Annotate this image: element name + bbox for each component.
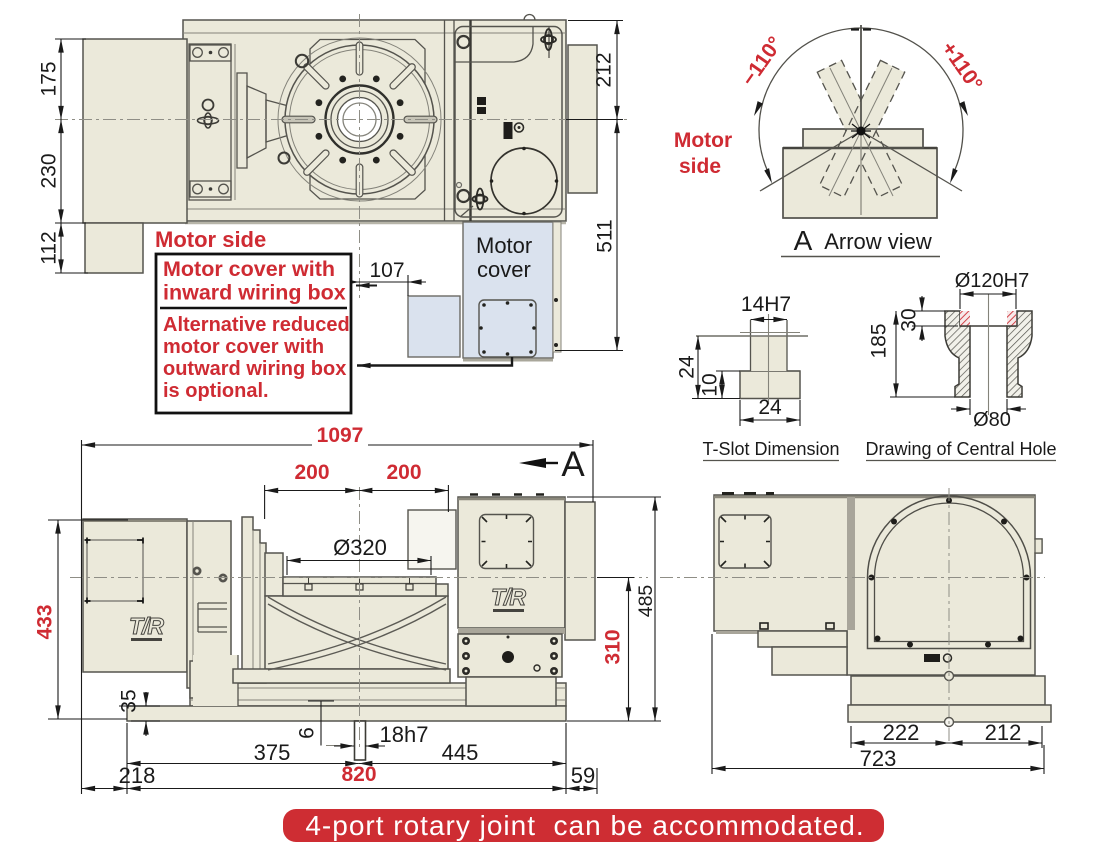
svg-text:inward wiring box: inward wiring box — [163, 281, 346, 305]
svg-text:723: 723 — [860, 746, 897, 771]
svg-text:310: 310 — [602, 629, 625, 664]
svg-text:motor cover with: motor cover with — [163, 336, 324, 358]
svg-text:10: 10 — [699, 373, 722, 396]
svg-text:433: 433 — [34, 604, 57, 639]
svg-text:112: 112 — [38, 231, 61, 264]
svg-text:Ø320: Ø320 — [333, 535, 387, 560]
svg-text:218: 218 — [119, 763, 156, 788]
svg-text:445: 445 — [442, 740, 479, 765]
svg-text:T/R: T/R — [129, 613, 164, 639]
svg-text:24: 24 — [758, 396, 782, 419]
svg-text:200: 200 — [294, 461, 329, 484]
svg-text:4-port rotary joint can be ac: 4-port rotary joint can be accommodated. — [305, 810, 864, 841]
svg-text:side: side — [679, 155, 721, 178]
svg-text:Motor side: Motor side — [155, 227, 266, 252]
svg-text:6: 6 — [296, 727, 319, 739]
svg-text:T-Slot Dimension: T-Slot Dimension — [702, 439, 839, 459]
svg-text:35: 35 — [118, 689, 141, 712]
svg-text:cover: cover — [477, 257, 531, 282]
svg-text:Motor: Motor — [674, 129, 732, 152]
svg-text:820: 820 — [341, 763, 376, 786]
svg-text:1097: 1097 — [317, 424, 364, 447]
svg-text:185: 185 — [868, 323, 891, 358]
svg-text:485: 485 — [635, 585, 657, 618]
svg-text:59: 59 — [571, 763, 595, 788]
svg-text:212: 212 — [593, 52, 616, 87]
svg-text:30: 30 — [898, 308, 921, 331]
svg-text:212: 212 — [985, 720, 1022, 745]
svg-text:107: 107 — [369, 259, 404, 282]
svg-text:A: A — [794, 225, 813, 256]
svg-text:24: 24 — [676, 355, 699, 379]
svg-text:Motor: Motor — [476, 233, 532, 258]
svg-text:Motor cover with: Motor cover with — [163, 257, 335, 281]
svg-text:Alternative reduced: Alternative reduced — [163, 314, 350, 336]
svg-text:375: 375 — [254, 740, 291, 765]
svg-text:is optional.: is optional. — [163, 380, 269, 402]
svg-text:Arrow view: Arrow view — [824, 229, 932, 254]
svg-text:230: 230 — [38, 153, 61, 188]
svg-text:14H7: 14H7 — [741, 293, 791, 316]
svg-text:A: A — [561, 445, 585, 484]
svg-text:T/R: T/R — [491, 584, 526, 610]
svg-text:outward wiring box: outward wiring box — [163, 358, 346, 380]
svg-text:Ø80: Ø80 — [973, 409, 1011, 431]
svg-text:222: 222 — [883, 720, 920, 745]
svg-text:200: 200 — [386, 461, 421, 484]
svg-text:Ø120H7: Ø120H7 — [955, 270, 1030, 292]
svg-text:511: 511 — [594, 219, 617, 252]
svg-text:18h7: 18h7 — [380, 722, 429, 747]
svg-text:175: 175 — [38, 61, 61, 96]
svg-text:Drawing of Central Hole: Drawing of Central Hole — [865, 439, 1056, 459]
